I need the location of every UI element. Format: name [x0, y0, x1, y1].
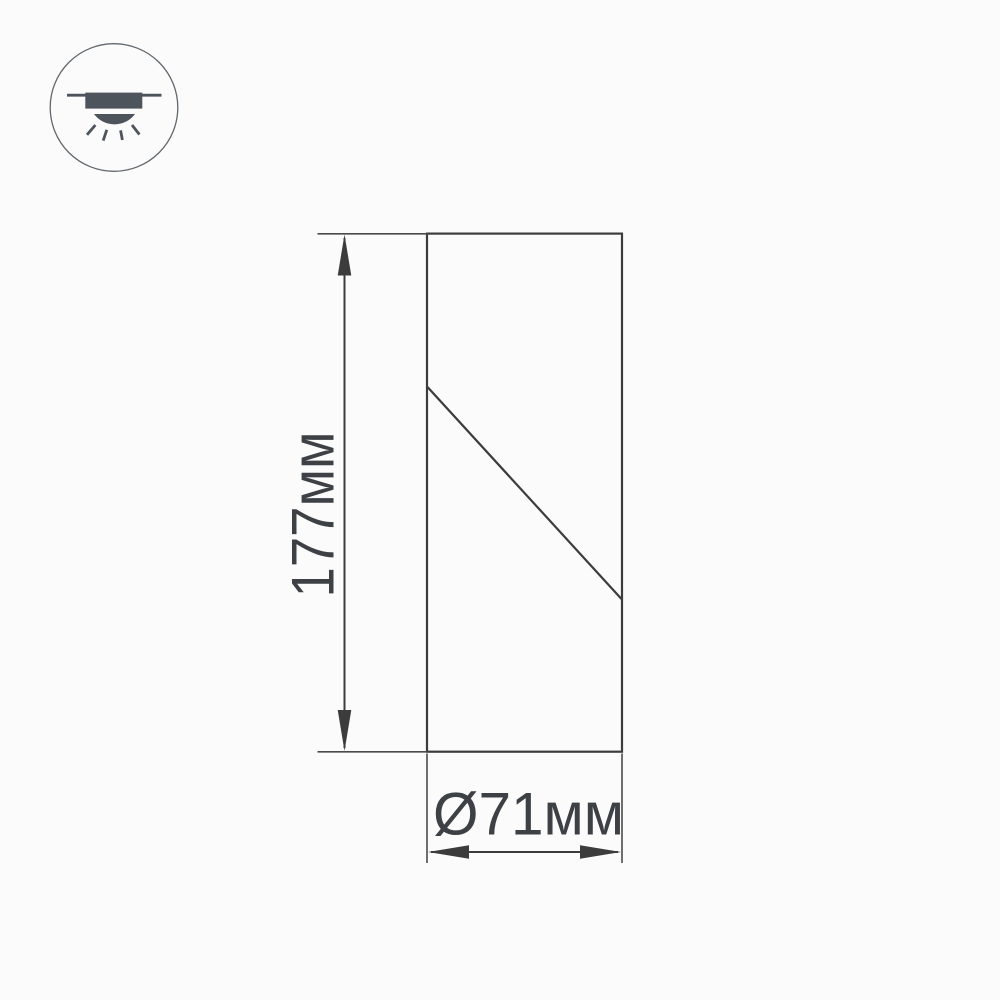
svg-text:Ø71мм: Ø71мм [433, 781, 624, 848]
svg-text:177мм: 177мм [280, 432, 347, 598]
